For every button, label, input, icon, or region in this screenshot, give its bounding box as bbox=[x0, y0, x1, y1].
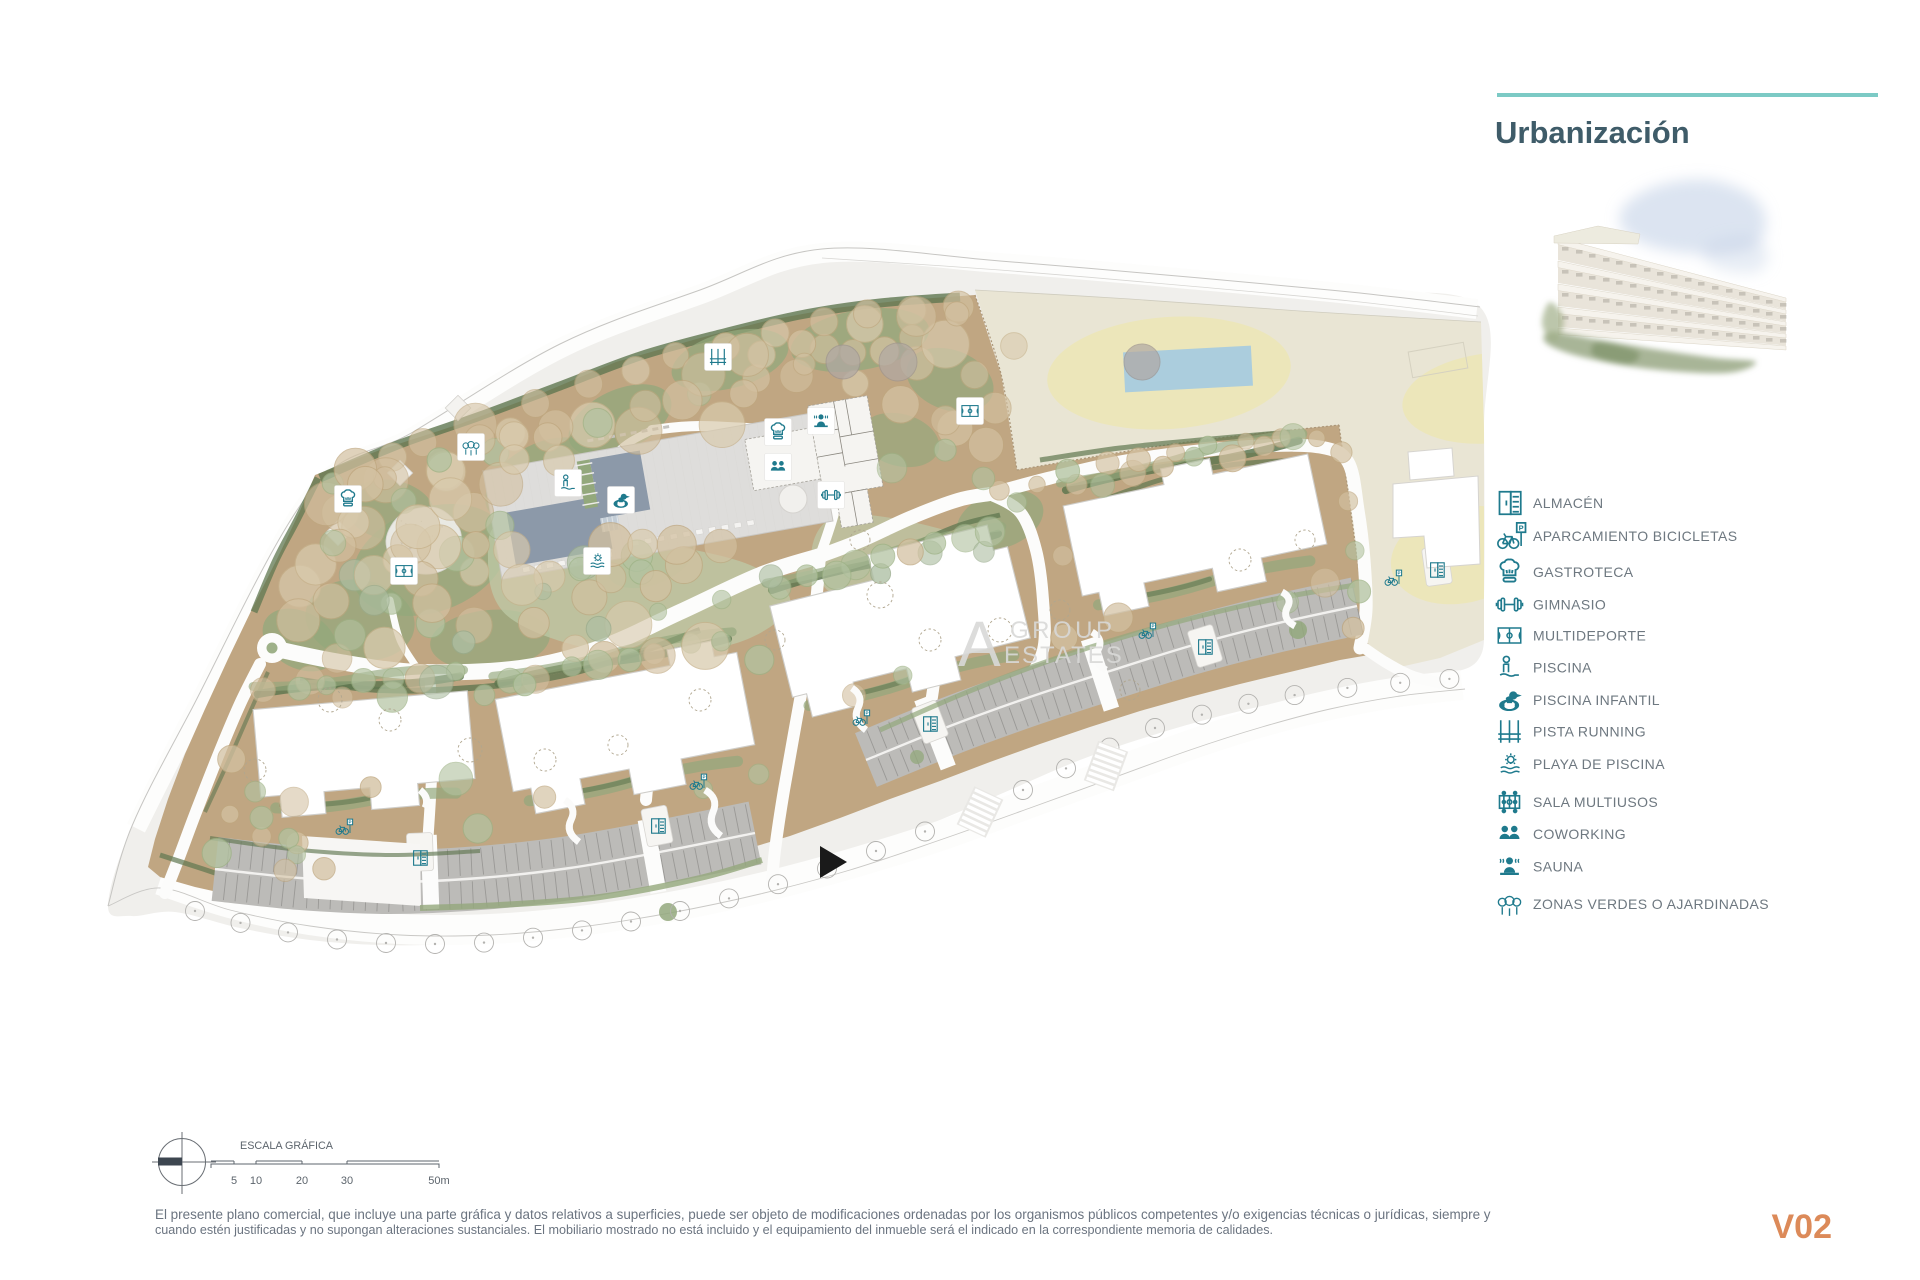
svg-text:PISTA RUNNING: PISTA RUNNING bbox=[1533, 724, 1646, 740]
svg-text:A: A bbox=[958, 608, 1001, 680]
svg-text:50m: 50m bbox=[428, 1175, 449, 1187]
svg-text:ALMACÉN: ALMACÉN bbox=[1533, 495, 1603, 511]
svg-text:PLAYA DE PISCINA: PLAYA DE PISCINA bbox=[1533, 756, 1665, 772]
svg-text:SALA MULTIUSOS: SALA MULTIUSOS bbox=[1533, 794, 1658, 810]
svg-text:10: 10 bbox=[250, 1175, 262, 1187]
svg-text:ZONAS VERDES O AJARDINADAS: ZONAS VERDES O AJARDINADAS bbox=[1533, 896, 1769, 912]
svg-text:El presente plano comercial, q: El presente plano comercial, que incluye… bbox=[155, 1207, 1491, 1222]
svg-text:ESTATES: ESTATES bbox=[1004, 642, 1124, 669]
svg-text:30: 30 bbox=[341, 1175, 353, 1187]
svg-text:APARCAMIENTO BICICLETAS: APARCAMIENTO BICICLETAS bbox=[1533, 528, 1737, 544]
svg-text:MULTIDEPORTE: MULTIDEPORTE bbox=[1533, 628, 1646, 644]
svg-text:GASTROTECA: GASTROTECA bbox=[1533, 564, 1634, 580]
svg-text:Urbanización: Urbanización bbox=[1495, 115, 1690, 150]
svg-text:GROUP: GROUP bbox=[1010, 617, 1116, 644]
svg-text:COWORKING: COWORKING bbox=[1533, 826, 1626, 842]
svg-text:PISCINA INFANTIL: PISCINA INFANTIL bbox=[1533, 692, 1660, 708]
svg-text:PISCINA: PISCINA bbox=[1533, 660, 1592, 676]
svg-text:ESCALA GRÁFICA: ESCALA GRÁFICA bbox=[240, 1139, 334, 1152]
svg-text:20: 20 bbox=[296, 1175, 308, 1187]
svg-text:GIMNASIO: GIMNASIO bbox=[1533, 597, 1606, 613]
svg-text:V02: V02 bbox=[1772, 1208, 1833, 1246]
svg-text:5: 5 bbox=[231, 1175, 237, 1187]
svg-text:SAUNA: SAUNA bbox=[1533, 859, 1583, 875]
svg-text:cuando estén justificadas y no: cuando estén justificadas y no supongan … bbox=[155, 1223, 1273, 1237]
